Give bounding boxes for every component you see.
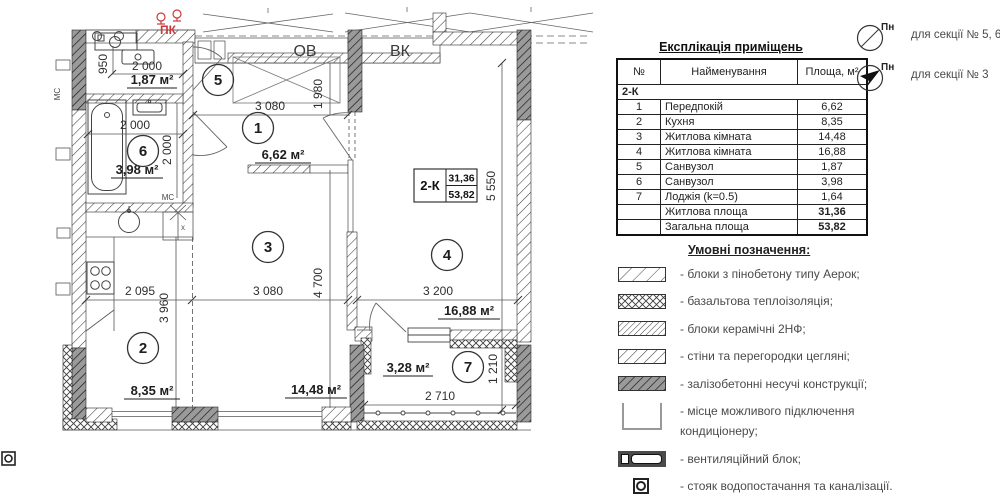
row-num-empty [617,205,661,220]
area-room2: 8,35 м² [131,383,175,398]
legend-item: - стіни та перегородки цегляні; [618,346,1000,366]
row-num: 6 [617,175,661,190]
compass-label: Пн [881,22,894,33]
reinforced-concrete-icon [618,376,666,391]
row-area: 3,98 [798,175,868,190]
dim-2000-wc: 2 000 [132,59,162,73]
explication-title: Експлікація приміщень [616,40,846,54]
row-area: 6,62 [798,100,868,115]
col-header-num: № [617,59,661,85]
row-area: 14,48 [798,130,868,145]
table-total-row: Загальна площа 53,82 [617,220,867,236]
legend-title: Умовні позначення: [688,243,1000,257]
row-name: Санвузол [661,160,798,175]
legend-text: - блоки з пінобетону типу Аерок; [680,264,860,284]
compass-caption: для секції № 3 [911,69,988,81]
ceramic-block-icon [618,321,666,336]
apartment-total-area: 53,82 [448,189,474,201]
label-ms-vertical: МС [53,88,62,101]
room-num-2: 2 [139,340,147,357]
room-num-7: 7 [464,359,472,376]
row-area: 1,64 [798,190,868,205]
area-labels: 1,87 м² 3,98 м² 6,62 м² 8,35 м² 14,48 м²… [111,72,500,399]
dim-5550: 5 550 [484,171,498,201]
riser-icon [633,478,649,494]
brick-wall-icon [618,349,666,364]
floor-plan-sheet: { "plan": { "labels": { "ov": "ОВ", "vk"… [0,0,1000,472]
row-name: Санвузол [661,175,798,190]
dim-4700: 4 700 [311,268,325,298]
table-header-row: № Найменування Площа, м² [617,59,867,85]
row-area: 1,87 [798,160,868,175]
label-vk: ВК [390,43,411,60]
compass-north-icon: Пн [853,56,903,94]
area-room4: 16,88 м² [444,303,495,318]
legend-item: - базальтова теплоізоляція; [618,291,1000,311]
dimension-texts: 950 2 000 2 000 2 000 3 080 1 980 5 550 … [96,54,500,403]
dim-950: 950 [96,54,110,74]
dim-2710: 2 710 [425,389,455,403]
legend-item: - залізобетонні несучі конструкції; [618,374,1000,394]
label-pk: ПК [160,23,177,37]
basalt-insulation-icon [618,294,666,309]
aerated-block-hatch-icon [618,267,666,282]
legend: Умовні позначення: - блоки з пінобетону … [618,243,1000,497]
stove-icon [87,262,114,294]
room-num-5: 5 [214,72,222,89]
apartment-tag: 2-К 31,36 53,82 [414,169,477,202]
apartment-type: 2-К [420,178,440,193]
apartment-living-area: 31,36 [448,173,474,185]
dim-3200: 3 200 [423,284,453,298]
compass-caption: для секції № 5, 6 [911,29,1000,41]
legend-text: - залізобетонні несучі конструкції; [680,374,867,394]
row-num: 1 [617,100,661,115]
dim-3080-hall: 3 080 [255,99,285,113]
ventilation-block-icon [618,451,666,467]
dim-2095: 2 095 [125,284,155,298]
overhang-outline [195,7,593,43]
row-num: 4 [617,145,661,160]
col-header-name: Найменування [661,59,798,85]
riser-symbol [2,452,15,465]
row-num: 3 [617,130,661,145]
row-name: Кухня [661,115,798,130]
compass-label: Пн [881,62,894,73]
row-area: 8,35 [798,115,868,130]
table-row: 1 Передпокій 6,62 [617,100,867,115]
legend-text: - стояк водопостачання та каналізації. [680,476,893,496]
floor-plan-drawing: ПК ОВ ВК МС МС х 950 2 000 2 000 2 000 3… [0,0,612,472]
table-row: 3 Житлова кімната 14,48 [617,130,867,145]
dim-2000-v: 2 000 [160,135,174,165]
row-name: Житлова кімната [661,130,798,145]
dim-3080-room3: 3 080 [253,284,283,298]
construction-lines [56,30,531,430]
compass-section-3: Пн для секції № 3 [853,56,988,94]
table-total-row: Житлова площа 31,36 [617,205,867,220]
legend-text: - місце можливого підключення кондиціоне… [680,401,855,442]
area-room7: 3,28 м² [387,360,431,375]
legend-text: - стіни та перегородки цегляні; [680,346,850,366]
ac-place-icon [622,403,662,430]
area-room5: 1,87 м² [131,72,175,87]
group-label: 2-К [617,85,867,100]
legend-text: - базальтова теплоізоляція; [680,291,833,311]
row-num: 2 [617,115,661,130]
dim-1210: 1 210 [486,354,500,384]
row-area: 16,88 [798,145,868,160]
row-name: Передпокій [661,100,798,115]
row-name: Житлова кімната [661,145,798,160]
legend-item: - місце можливого підключення кондиціоне… [618,401,1000,442]
total-area: 53,82 [798,220,868,236]
table-row: 2 Кухня 8,35 [617,115,867,130]
table-row: 7 Лоджія (k=0.5) 1,64 [617,190,867,205]
room-num-1: 1 [254,120,262,137]
bathtub-icon [88,100,126,194]
legend-item: - блоки керамічні 2НФ; [618,319,1000,339]
table-group-row: 2-К [617,85,867,100]
legend-text: - блоки керамічні 2НФ; [680,319,806,339]
table-row: 6 Санвузол 3,98 [617,175,867,190]
label-ms: МС [162,193,175,202]
total-area: 31,36 [798,205,868,220]
room-num-6: 6 [139,143,147,160]
row-name: Лоджія (k=0.5) [661,190,798,205]
label-x: х [181,223,185,232]
row-num-empty [617,220,661,236]
legend-item: - стояк водопостачання та каналізації. [618,476,1000,496]
area-room1: 6,62 м² [262,147,306,162]
row-num: 5 [617,160,661,175]
explication-table: № Найменування Площа, м² 2-К 1 Передпокі… [616,58,868,236]
label-ov: ОВ [293,43,316,60]
area-room6: 3,98 м² [116,162,160,177]
dim-2000-bath: 2 000 [120,118,150,132]
compass-section-5-6: Пн для секції № 5, 6 [853,16,1000,54]
legend-text-line2: кондиціонеру; [680,424,758,438]
total-name: Житлова площа [661,205,798,220]
legend-text-line1: - місце можливого підключення [680,404,855,418]
row-num: 7 [617,190,661,205]
total-name: Загальна площа [661,220,798,236]
room-num-4: 4 [443,247,452,264]
balcony-railing [364,411,516,415]
compass-north-icon: Пн [853,16,903,54]
legend-text: - вентиляційний блок; [680,449,801,469]
area-room3: 14,48 м² [291,382,342,397]
legend-item: - блоки з пінобетону типу Аерок; [618,264,1000,284]
table-row: 5 Санвузол 1,87 [617,160,867,175]
fire-hose-icon [157,10,181,24]
dim-3960: 3 960 [157,293,171,323]
table-row: 4 Житлова кімната 16,88 [617,145,867,160]
room-num-3: 3 [264,239,272,256]
dim-1980: 1 980 [311,79,325,109]
legend-item: - вентиляційний блок; [618,449,1000,469]
